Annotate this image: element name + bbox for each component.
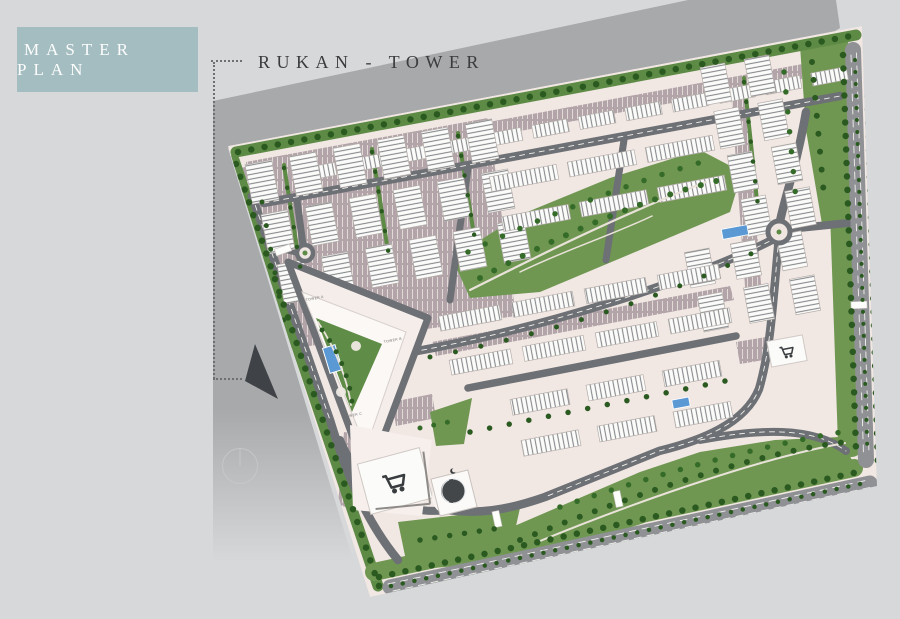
master-plan-map: TOWER A TOWER B TOWER C — [0, 0, 900, 619]
courtyard-plaza — [351, 341, 361, 351]
entrance-gate — [851, 301, 867, 309]
connector-line — [213, 378, 242, 380]
project-label: RUKAN - TOWER — [258, 52, 485, 73]
master-plan-page: TOWER A TOWER B TOWER C — [0, 0, 900, 619]
master-plan-label: MASTER PLAN — [17, 40, 198, 80]
retail-mall — [350, 425, 437, 518]
connector-line — [213, 62, 215, 379]
connector-line — [211, 60, 242, 62]
courtyard-plaza — [336, 387, 346, 397]
master-plan-box: MASTER PLAN — [17, 27, 198, 92]
